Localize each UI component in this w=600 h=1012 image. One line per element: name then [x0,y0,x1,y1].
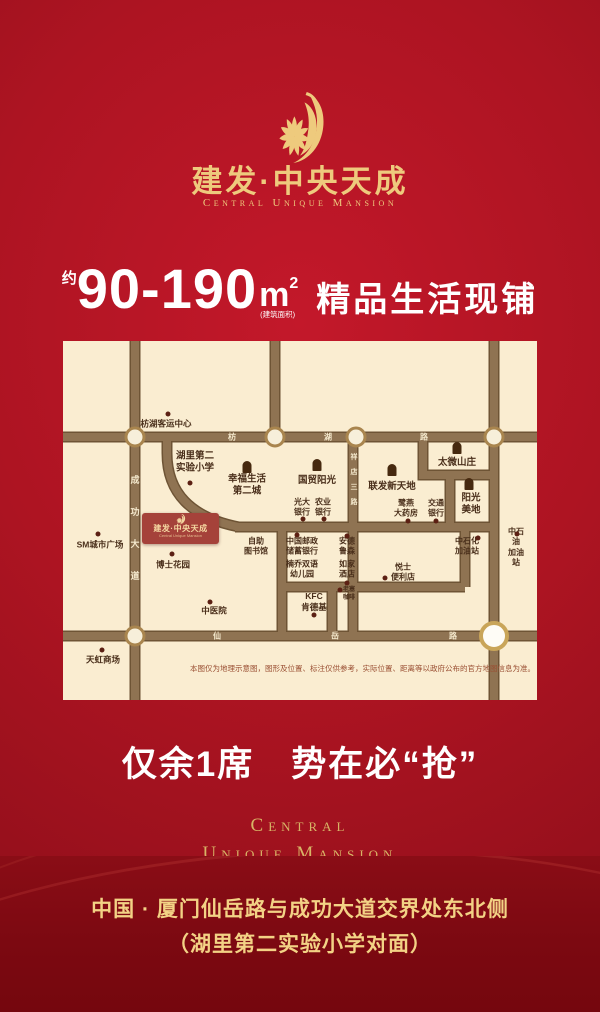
map-place-label: 枋湖客运中心 [140,418,191,429]
poi-dot [322,517,327,522]
poi-dot [345,534,350,539]
address-line2: （湖里第二实验小学对面） [0,928,600,963]
poi-dot [188,481,193,486]
poi-dot [208,600,213,605]
tagline: 仅余1席 势在必“抢” [0,736,600,787]
building-icon [453,442,462,454]
poi-dot [345,581,350,586]
approx-label: 约 [62,267,77,288]
poi-dot [383,576,388,581]
map-place-label: 阳光 美地 [461,493,480,518]
map-place-label: 光大 银行 [294,498,310,519]
nautilus-shell-icon [272,92,328,166]
map-place-label: 楠乔双语 幼儿园 [286,560,318,581]
building-icon [313,459,322,471]
map-place-label: SM城市广场 [77,539,124,550]
map-place-label: 太微山庄 [438,457,476,469]
footer-logo-line1: Central [0,812,600,840]
poi-dot [166,412,171,417]
road-name-label: 枋湖路 [228,432,516,443]
map-place-label: 交通 银行 [428,499,444,520]
poi-dot [515,532,520,537]
map-place-label: 博士花园 [156,559,190,570]
map-place-label: 老塞 咖啡 [343,587,355,603]
building-icon [465,478,474,490]
poi-dot [476,536,481,541]
poi-dot [96,532,101,537]
map-disclaimer: 本图仅为地理示意图，图形及位置、标注仅供参考，实际位置、距离等以政府公布的官方地… [190,663,540,674]
map-place-label: KFC 肯德基 [301,591,327,613]
badge-name-en: Central Unique Mansion [159,534,202,538]
map-place-label: 联发新天地 [368,481,416,493]
address-line1: 中国 · 厦门仙岳路与成功大道交界处东北侧 [0,893,600,928]
map-place-label: 悦士 便利店 [391,563,415,584]
poi-dot [100,648,105,653]
poi-dot [295,533,300,538]
area-unit: m2(建筑面积) [259,275,298,311]
location-map: 枋湖客运中心湖里第二 实验小学幸福生活 第二城国贸阳光光大 银行农业 银行联发新… [63,341,537,700]
unit-sup: 2 [289,275,298,292]
map-place-label: 如家 酒店 [339,560,355,581]
poi-dot [312,613,317,618]
building-icon [388,464,397,476]
road-name-label: 祥店三路 [348,453,358,513]
map-place-label: 幸福生活 第二城 [228,474,266,499]
map-places-layer: 枋湖客运中心湖里第二 实验小学幸福生活 第二城国贸阳光光大 银行农业 银行联发新… [63,341,537,700]
brand-name-en: Central Unique Mansion [0,197,600,209]
project-location-badge: 建发·中央天成 Central Unique Mansion [142,513,219,544]
map-place-label: 国贸阳光 [298,475,336,487]
map-place-label: 安德 鲁森 [339,537,355,558]
building-icon [243,461,252,473]
address-block: 中国 · 厦门仙岳路与成功大道交界处东北侧 （湖里第二实验小学对面） [0,893,600,962]
poi-dot [406,519,411,524]
map-place-label: 鹭燕 大药房 [394,499,418,520]
poi-dot [338,588,343,593]
brand-name-cn: 建发·中央天成 [0,156,600,201]
headline-suffix: 精品生活现铺 [316,272,538,321]
map-place-label: 湖里第二 实验小学 [176,451,214,476]
poi-dot [301,517,306,522]
map-place-label: 天虹商场 [86,654,120,665]
map-place-label: 自助 图书馆 [244,537,268,558]
map-place-label: 农业 银行 [315,498,331,519]
poi-dot [170,552,175,557]
map-place-label: 中医院 [201,605,227,616]
map-place-label: 中国邮政 储蓄银行 [286,537,318,558]
headline: 约 90-190 m2(建筑面积) 精品生活现铺 [0,261,600,321]
area-range: 90-190 [77,261,257,317]
road-name-label: 仙岳路 [213,631,567,642]
poster: 建发·中央天成 Central Unique Mansion 约 90-190 … [0,0,600,1012]
road-name-label: 成功大道 [129,475,142,603]
poi-dot [434,519,439,524]
area-note: (建筑面积) [260,309,295,320]
